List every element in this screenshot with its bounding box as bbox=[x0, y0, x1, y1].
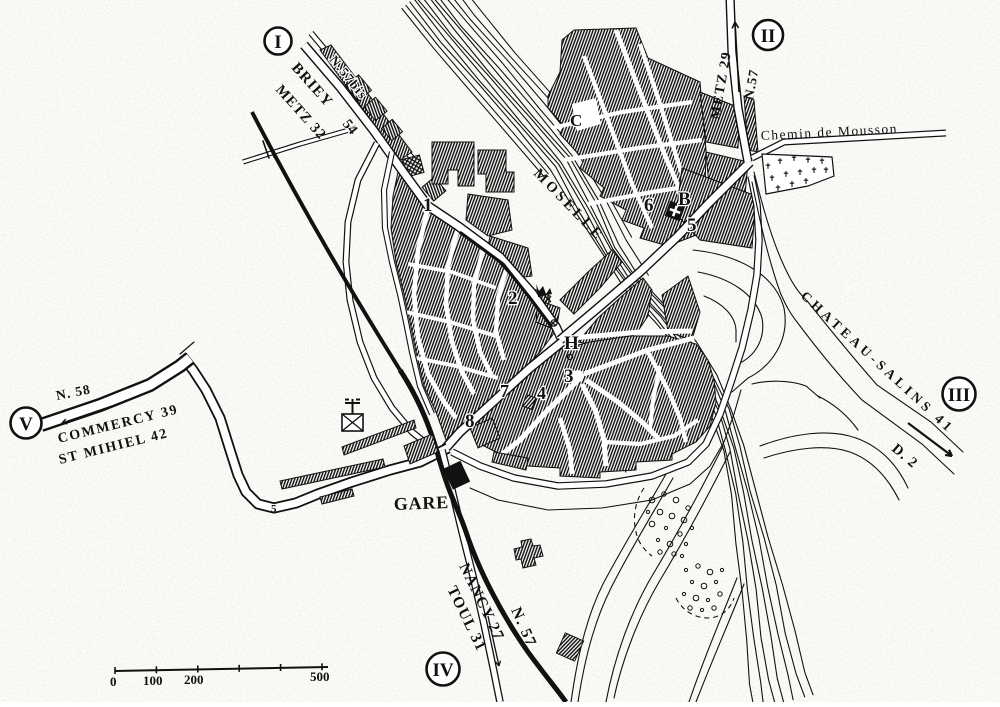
svg-text:6: 6 bbox=[644, 195, 654, 216]
svg-text:IV: IV bbox=[432, 660, 453, 681]
svg-text:II: II bbox=[761, 26, 776, 47]
svg-text:4: 4 bbox=[537, 383, 546, 403]
svg-text:B: B bbox=[678, 189, 691, 210]
svg-text:5: 5 bbox=[687, 215, 697, 236]
svg-text:0: 0 bbox=[110, 674, 117, 689]
svg-text:GARE: GARE bbox=[393, 492, 449, 514]
svg-text:500: 500 bbox=[310, 669, 330, 684]
svg-text:8: 8 bbox=[465, 411, 475, 432]
svg-text:III: III bbox=[948, 385, 970, 406]
svg-text:5: 5 bbox=[271, 503, 277, 515]
svg-text:2: 2 bbox=[508, 288, 518, 309]
svg-text:I: I bbox=[274, 32, 281, 53]
svg-text:7: 7 bbox=[500, 381, 509, 401]
svg-text:1: 1 bbox=[423, 195, 433, 216]
svg-text:H: H bbox=[564, 333, 579, 354]
svg-text:V: V bbox=[19, 414, 33, 435]
svg-text:3: 3 bbox=[564, 366, 574, 387]
svg-text:100: 100 bbox=[143, 673, 163, 688]
svg-text:C: C bbox=[570, 111, 582, 130]
svg-text:200: 200 bbox=[184, 672, 204, 687]
